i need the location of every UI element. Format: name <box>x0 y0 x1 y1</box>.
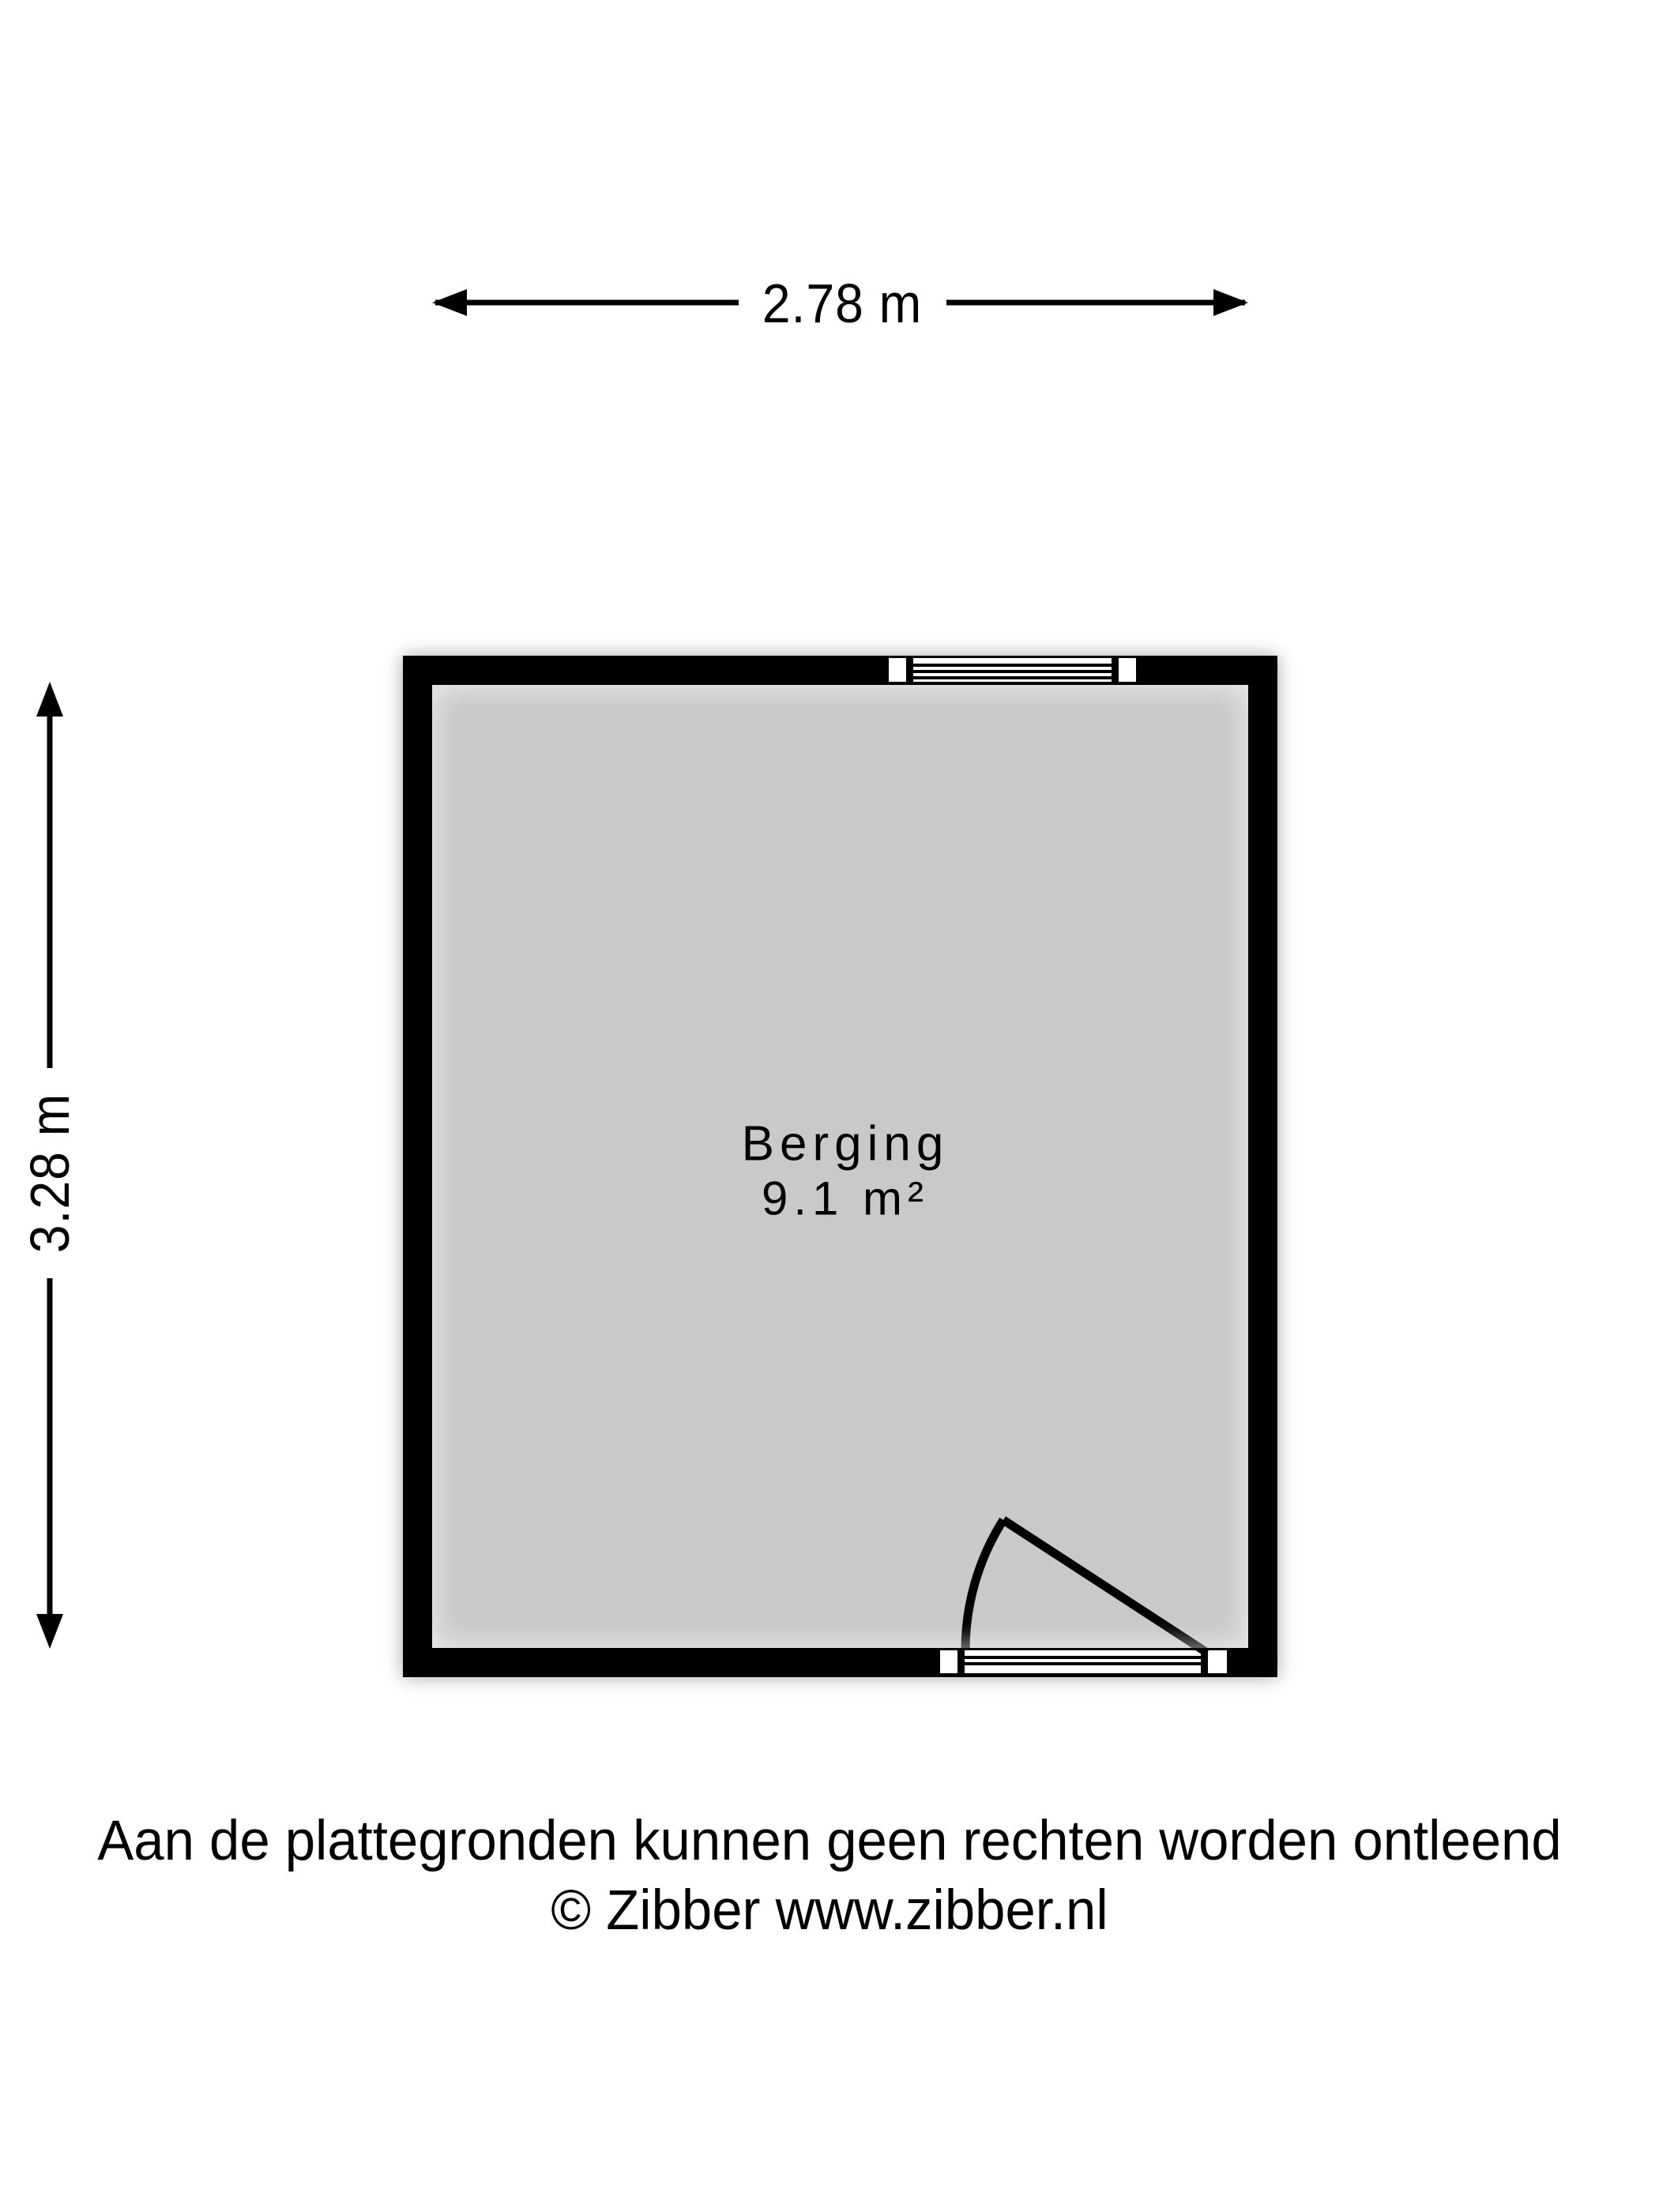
arrowhead-down-icon <box>36 1614 63 1649</box>
window-glazing-line <box>913 670 1112 673</box>
room-name-label: Berging <box>742 1116 950 1172</box>
copyright-text: © Zibber www.zibber.nl <box>25 1879 1635 1943</box>
height-dimension-label: 3.28 m <box>18 1093 81 1253</box>
window-glazing-line <box>913 676 1112 679</box>
door-threshold-line <box>965 1662 1201 1665</box>
arrowhead-right-icon <box>1213 289 1248 316</box>
window-top <box>889 658 1136 682</box>
width-dimension-label: 2.78 m <box>762 272 922 335</box>
window-glazing-line <box>913 664 1112 667</box>
arrowhead-up-icon <box>36 682 63 717</box>
window-mullion-right <box>1112 658 1119 682</box>
arrowhead-left-icon <box>432 289 467 316</box>
floorplan-page: 2.78 m 3.28 m Berging 9.1 m² Aan de plat… <box>0 0 1659 2212</box>
room-area-label: 9.1 m² <box>762 1172 929 1226</box>
disclaimer-text: Aan de plattegronden kunnen geen rechten… <box>25 1809 1635 1874</box>
door-jamb-left <box>957 1650 965 1673</box>
window-mullion-left <box>906 658 913 682</box>
door-threshold-line <box>965 1656 1201 1659</box>
door-threshold <box>940 1650 1227 1673</box>
